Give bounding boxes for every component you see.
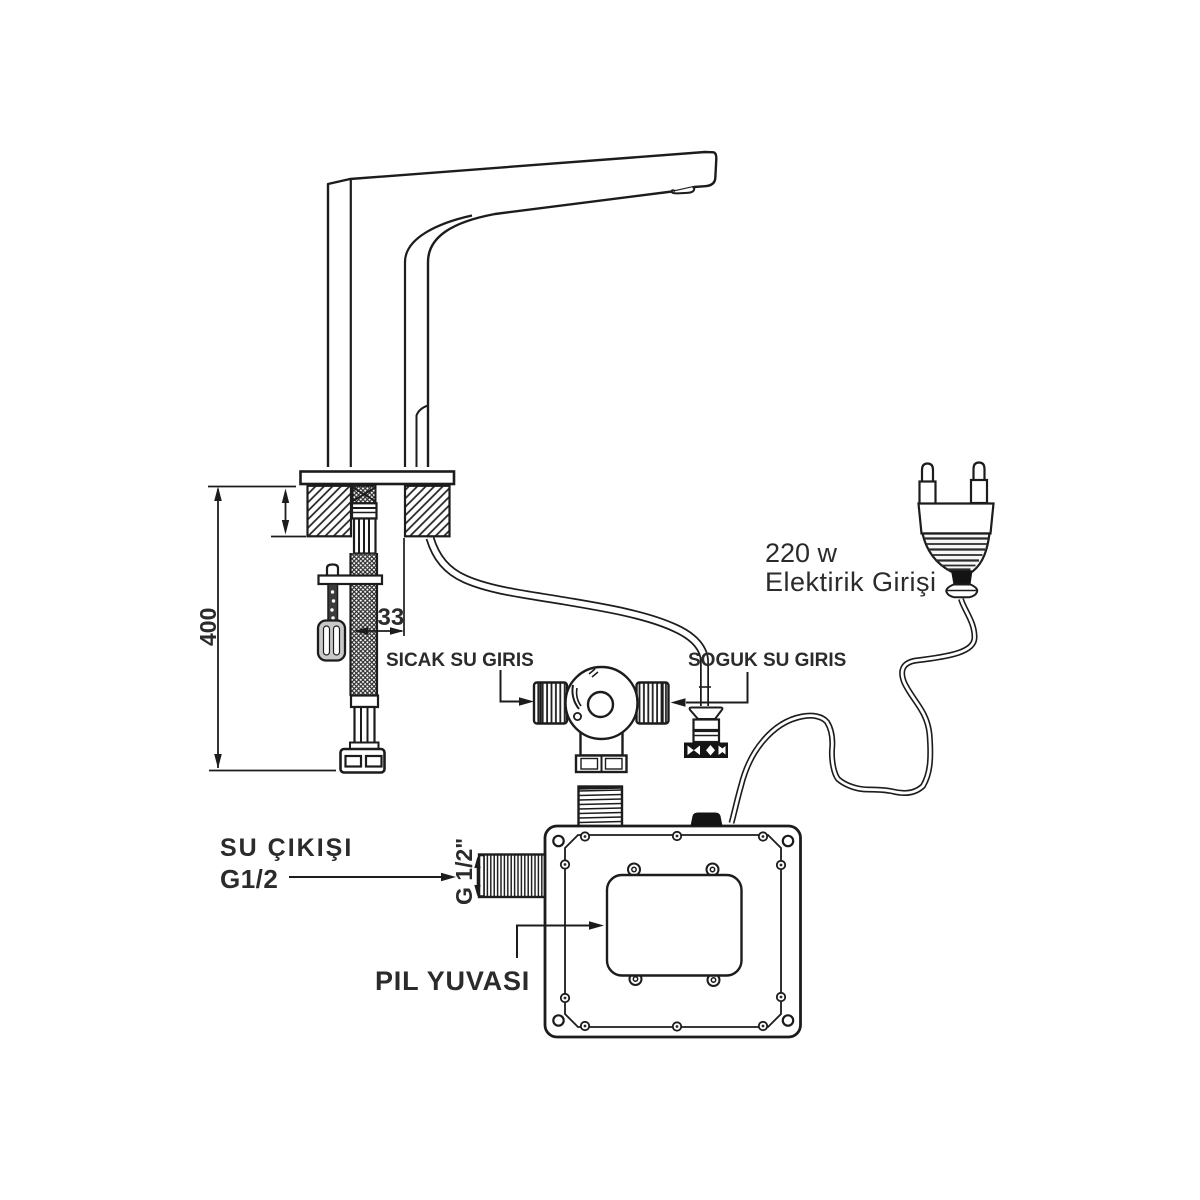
svg-text:SU ÇIKIŞI: SU ÇIKIŞI [220,834,353,862]
svg-text:400: 400 [195,608,221,646]
svg-text:PIL YUVASI: PIL YUVASI [375,966,530,996]
svg-text:Elektirik Girişi: Elektirik Girişi [765,567,937,597]
svg-text:G1/2: G1/2 [220,864,278,894]
svg-text:SOGUK SU GIRIS: SOGUK SU GIRIS [688,650,846,671]
svg-text:SICAK SU GIRIS: SICAK SU GIRIS [386,650,534,671]
svg-text:33: 33 [378,604,405,631]
svg-text:G 1/2": G 1/2" [451,838,477,905]
svg-text:220 w: 220 w [765,538,838,568]
